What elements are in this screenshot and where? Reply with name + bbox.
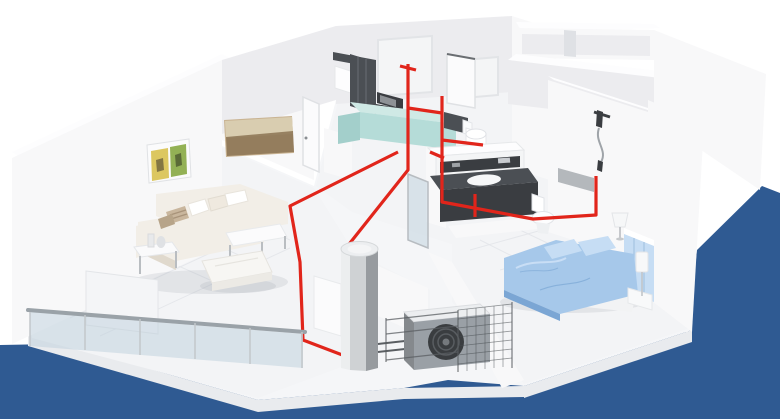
shower-handle bbox=[597, 160, 603, 172]
diptych-left-motif bbox=[156, 158, 164, 172]
shower-head bbox=[596, 110, 603, 128]
closet-floor-a bbox=[522, 34, 650, 56]
scene-canvas bbox=[0, 0, 780, 419]
diptych-right-motif bbox=[175, 153, 182, 167]
toilet-pedestal bbox=[536, 222, 550, 234]
washer-control bbox=[498, 158, 510, 164]
kitchen-door bbox=[447, 54, 475, 108]
toilet-tank bbox=[532, 194, 544, 214]
decor-bowl bbox=[157, 236, 166, 248]
door-handle bbox=[305, 137, 308, 140]
cylinder-top-inner bbox=[348, 245, 372, 254]
fan-hub bbox=[443, 339, 450, 346]
closet-divider-wall bbox=[564, 30, 576, 57]
decor-vase bbox=[148, 234, 154, 247]
glass-partition bbox=[408, 174, 428, 248]
apartment-3d-render bbox=[0, 0, 780, 419]
washer-control bbox=[452, 163, 460, 168]
cylinder-highlight bbox=[341, 248, 350, 370]
slab-edge-front-right bbox=[404, 386, 524, 399]
cylinder-shade bbox=[366, 248, 378, 371]
glass-panel bbox=[408, 174, 428, 248]
teal-counter-return bbox=[338, 112, 360, 144]
table-lamp-shade bbox=[612, 213, 628, 227]
cylinder-body bbox=[350, 248, 366, 371]
guest-toilet-seat bbox=[466, 129, 486, 139]
living-room-door bbox=[303, 97, 319, 172]
cylinder-pedestal bbox=[314, 276, 341, 336]
floor-lamp-shade bbox=[636, 252, 648, 272]
table-lamp-base bbox=[616, 238, 624, 241]
